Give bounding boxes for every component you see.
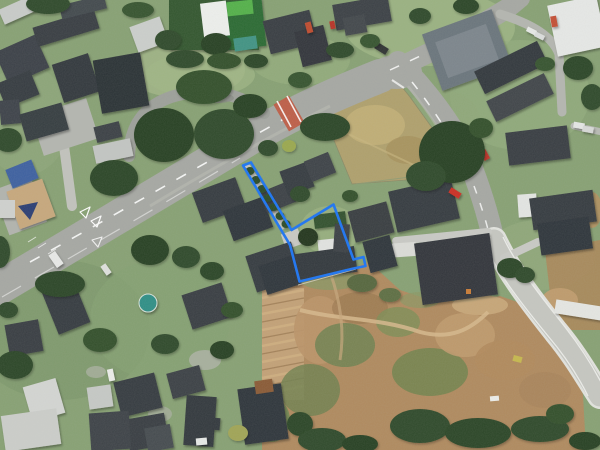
aerial-photo[interactable] xyxy=(0,0,600,450)
aerial-map-view[interactable] xyxy=(0,0,600,450)
